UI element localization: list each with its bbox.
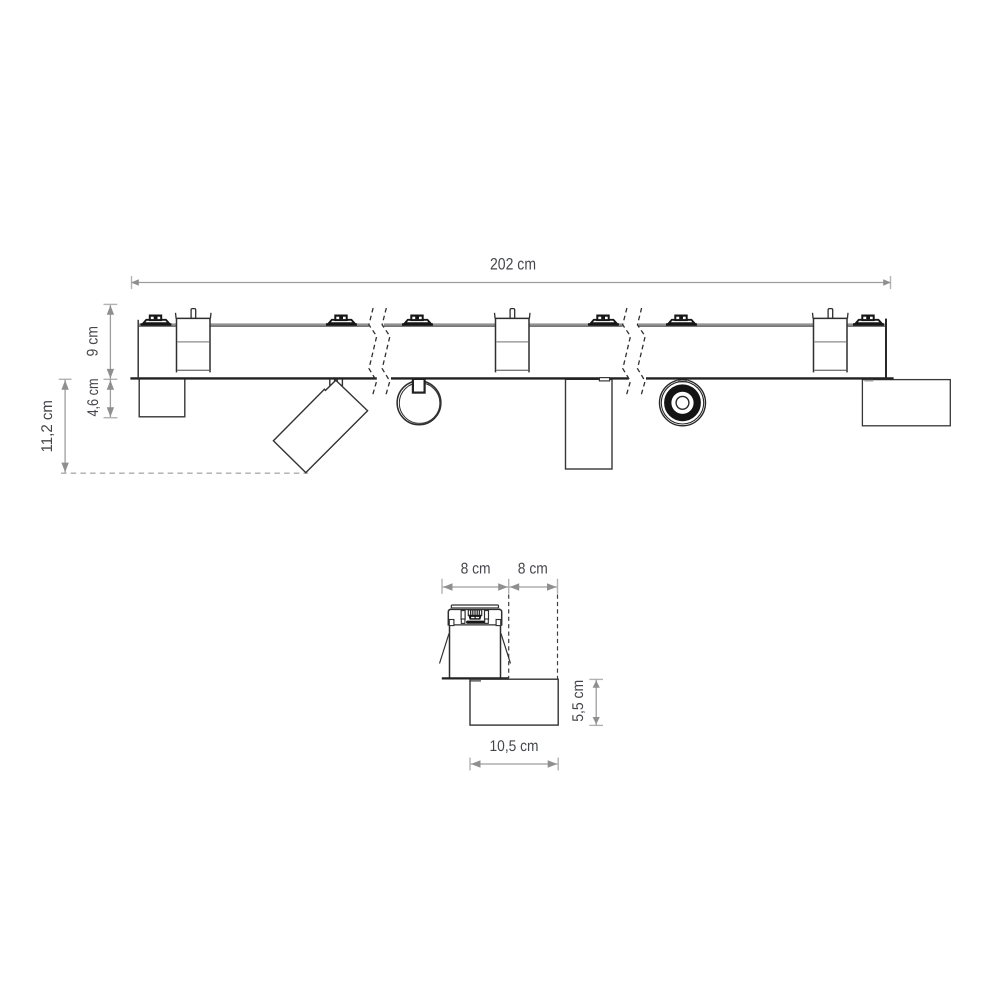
svg-text:8 cm: 8 cm xyxy=(518,561,548,578)
svg-text:202 cm: 202 cm xyxy=(490,256,536,274)
svg-text:9 cm: 9 cm xyxy=(85,326,102,357)
svg-text:8 cm: 8 cm xyxy=(461,561,491,578)
svg-text:10,5 cm: 10,5 cm xyxy=(490,738,539,755)
svg-text:11,2 cm: 11,2 cm xyxy=(39,400,56,453)
svg-text:5,5 cm: 5,5 cm xyxy=(570,680,587,722)
svg-text:4,6 cm: 4,6 cm xyxy=(85,379,102,417)
